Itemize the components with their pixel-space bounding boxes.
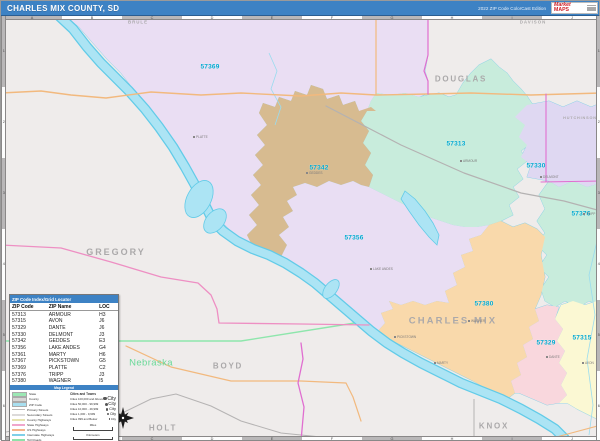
grid-row-6: 6 [3, 404, 5, 408]
grid-row-5: 5 [3, 333, 5, 337]
zip-index-cell: J6 [97, 318, 118, 325]
city-class-row: Cities 10,000 - 49,999City [70, 406, 116, 411]
zip-index-header-row: ZIP CodeZIP NameLOC [10, 303, 118, 311]
legend-swatch [12, 414, 25, 416]
zip-index-col-header: ZIP Code [10, 303, 47, 311]
zip-index-cell: 57367 [10, 358, 47, 365]
zip-index-cell: 57380 [10, 378, 47, 385]
town-marker-wagner: WAGNER [468, 312, 485, 330]
zip-index-cell: LAKE ANDES [47, 345, 97, 352]
grid-col-E: E [271, 16, 274, 21]
zip-label-57380: 57380 [474, 301, 493, 308]
map-sheet: CHARLES MIX COUNTY, SD 2022 ZIP Code Col… [0, 0, 600, 440]
grid-col-E: E [271, 437, 274, 441]
grid-row-4: 4 [598, 262, 600, 266]
grid-col-G: G [391, 437, 394, 441]
zip-index-row: 57330DELMONTJ3 [10, 331, 118, 338]
zip-index-cell: TRIPP [47, 371, 97, 378]
zip-index-cell: WAGNER [47, 378, 97, 385]
zip-index-cell: MARTY [47, 351, 97, 358]
county-label-boyd: BOYD [213, 362, 243, 371]
grid-col-D: D [211, 16, 214, 21]
zip-index-cell: G5 [97, 358, 118, 365]
publisher-logo: MarketMAPS [551, 2, 598, 14]
zip-index-cell: C2 [97, 365, 118, 372]
zip-index-row: 57367PICKSTOWNG5 [10, 358, 118, 365]
zip-index-row: 57329DANTEJ6 [10, 325, 118, 332]
grid-col-J: J [571, 437, 573, 441]
grid-col-F: F [331, 16, 333, 21]
town-marker-pickstown: PICKSTOWN [394, 328, 416, 346]
zip-label-57315: 57315 [572, 335, 591, 342]
zip-index-row: 57313ARMOURH3 [10, 311, 118, 318]
county-label-holt: HOLT [149, 424, 177, 433]
zip-index-cell: DELMONT [47, 331, 97, 338]
town-marker-marty: MARTY [434, 354, 448, 372]
zip-index-cell: ARMOUR [47, 311, 97, 318]
city-class-row: Cities 999 and BelowCity [70, 416, 116, 421]
grid-col-I: I [511, 16, 512, 21]
publisher-logo-fineprint [587, 4, 596, 12]
zip-index-row: 57369PLATTEC2 [10, 365, 118, 372]
legend-swatch [12, 429, 25, 431]
zip-index-cell: PICKSTOWN [47, 358, 97, 365]
grid-col-B: B [91, 16, 94, 21]
town-marker-delmont: DELMONT [540, 168, 559, 186]
legend-swatch [12, 419, 25, 421]
legend-swatch [12, 424, 25, 426]
zip-index-table: ZIP CodeZIP NameLOC 57313ARMOURH357315AV… [10, 303, 118, 385]
grid-col-H: H [451, 16, 454, 21]
zip-index-row: 57315AVONJ6 [10, 318, 118, 325]
zip-index-col-header: LOC [97, 303, 118, 311]
state-label-nebraska: Nebraska [129, 358, 173, 369]
grid-col-H: H [451, 437, 454, 441]
zip-index-row: 57380WAGNERI5 [10, 378, 118, 385]
zip-index-title: ZIP Code Index/Grid Locator [10, 295, 118, 303]
zip-index-row: 57376TRIPPJ3 [10, 371, 118, 378]
grid-row-3: 3 [598, 191, 600, 195]
zip-index-cell: 57329 [10, 325, 47, 332]
zip-index-cell: 57315 [10, 318, 47, 325]
zip-index-cell: AVON [47, 318, 97, 325]
zip-index-cell: J6 [97, 325, 118, 332]
edition-label: 2022 ZIP Code ColorCast Edition [478, 6, 546, 11]
county-label-knox: KNOX [479, 422, 509, 431]
grid-frame-right: 123456 [596, 15, 600, 441]
scale-bar-miles: Miles [70, 423, 116, 431]
town-marker-avon: AVON [582, 354, 594, 372]
zip-index-panel: ZIP Code Index/Grid Locator ZIP CodeZIP … [9, 294, 119, 441]
grid-col-C: C [151, 437, 154, 441]
zip-label-57329: 57329 [536, 340, 555, 347]
zip-index-cell: 57369 [10, 365, 47, 372]
title-bar: CHARLES MIX COUNTY, SD 2022 ZIP Code Col… [1, 1, 599, 16]
zip-index-cell: PLATTE [47, 365, 97, 372]
grid-row-1: 1 [3, 49, 5, 53]
county-label-gregory: GREGORY [86, 247, 146, 257]
grid-col-C: C [151, 16, 154, 21]
zip-index-cell: 57313 [10, 311, 47, 318]
county-label-douglas: DOUGLAS [435, 75, 487, 84]
zip-label-57313: 57313 [446, 141, 465, 148]
grid-col-F: F [331, 437, 333, 441]
zip-index-row: 57342GEDDESE3 [10, 338, 118, 345]
zip-index-cell: H3 [97, 311, 118, 318]
zip-index-cell: E3 [97, 338, 118, 345]
town-marker-armour: ARMOUR [460, 152, 477, 170]
legend-body: StateCountyZIP CodePrimary StreetsSecond… [10, 390, 118, 441]
zip-index-cell: G4 [97, 345, 118, 352]
legend-items-column: StateCountyZIP CodePrimary StreetsSecond… [12, 392, 70, 441]
grid-row-3: 3 [3, 191, 5, 195]
grid-col-A: A [31, 16, 34, 21]
zip-label-57356: 57356 [344, 235, 363, 242]
zip-index-row: 57361MARTYH6 [10, 351, 118, 358]
zip-index-col-header: ZIP Name [47, 303, 97, 311]
grid-col-J: J [571, 16, 573, 21]
town-marker-tripp: TRIPP [583, 205, 595, 223]
zip-index-cell: H6 [97, 351, 118, 358]
town-marker-dante: DANTE [546, 348, 560, 366]
grid-row-4: 4 [3, 262, 5, 266]
county-label-davison: DAVISON [520, 20, 546, 25]
zip-index-cell: 57361 [10, 351, 47, 358]
grid-row-1: 1 [598, 49, 600, 53]
town-marker-platte: PLATTE [193, 128, 208, 146]
legend-swatch [12, 409, 25, 411]
zip-index-cell: DANTE [47, 325, 97, 332]
grid-col-I: I [511, 437, 512, 441]
zip-index-cell: I5 [97, 378, 118, 385]
town-marker-lake-andes: LAKE ANDES [370, 260, 393, 278]
city-class-row: Cities 1,000 - 9,999City [70, 411, 116, 416]
grid-row-2: 2 [3, 120, 5, 124]
county-label-brule: BRULE [128, 20, 148, 25]
scale-bar-kilometers: Kilometers [70, 433, 116, 441]
zip-index-cell: J3 [97, 371, 118, 378]
grid-col-D: D [211, 437, 214, 441]
town-marker-geddes: GEDDES [306, 164, 322, 182]
grid-row-6: 6 [598, 404, 600, 408]
map-canvas: 5736957342573135733057376573565738057329… [1, 15, 600, 441]
zip-index-cell: 57342 [10, 338, 47, 345]
publisher-logo-text: MarketMAPS [552, 3, 571, 13]
zip-index-cell: GEDDES [47, 338, 97, 345]
zip-index-row: 57356LAKE ANDESG4 [10, 345, 118, 352]
grid-col-G: G [391, 16, 394, 21]
legend-swatch [12, 434, 25, 436]
grid-row-2: 2 [598, 120, 600, 124]
legend-cities-column: Cities and Towns Cities 100,000 and Abov… [70, 392, 116, 441]
zip-index-cell: 57330 [10, 331, 47, 338]
county-label-hutchinson: HUTCHINSON [563, 116, 597, 120]
legend-swatch [12, 402, 27, 407]
zip-index-cell: J3 [97, 331, 118, 338]
grid-frame-left: 123456 [1, 15, 6, 441]
zip-label-57369: 57369 [200, 64, 219, 71]
zip-index-cell: 57356 [10, 345, 47, 352]
page-title: CHARLES MIX COUNTY, SD [7, 4, 119, 13]
grid-row-5: 5 [598, 333, 600, 337]
zip-index-cell: 57376 [10, 371, 47, 378]
